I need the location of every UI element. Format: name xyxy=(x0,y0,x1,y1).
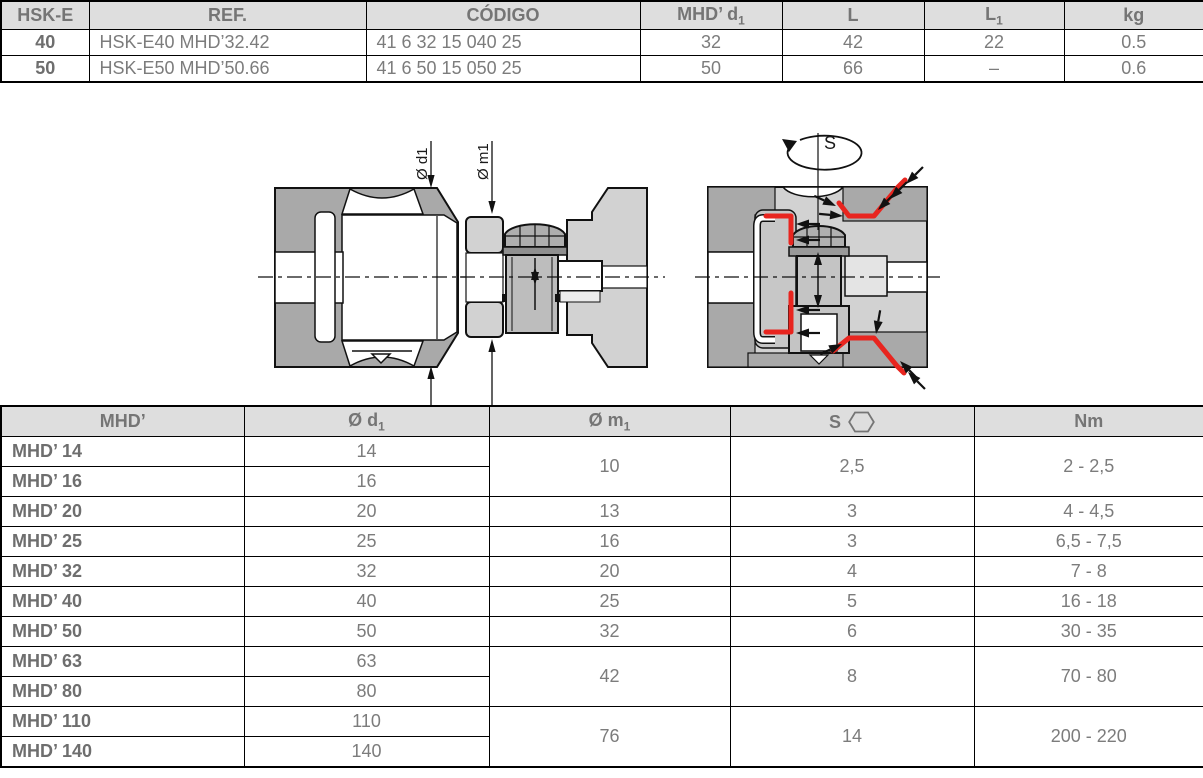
table-cell: 14 xyxy=(244,437,489,467)
column-header: L1 xyxy=(924,1,1064,30)
table-cell: 30 - 35 xyxy=(974,617,1203,647)
table-cell: MHD’ 25 xyxy=(1,527,244,557)
table-cell: 16 xyxy=(489,527,730,557)
table-cell: 25 xyxy=(489,587,730,617)
technical-drawing: Ø d1 Ø m1 xyxy=(0,85,1203,405)
column-header-label: HSK-E xyxy=(17,5,73,25)
column-header: HSK-E xyxy=(1,1,89,30)
column-header-label: MHD’ d xyxy=(677,4,738,24)
hex-icon xyxy=(848,411,875,433)
column-header: Ø d1 xyxy=(244,406,489,437)
column-header: MHD’ xyxy=(1,406,244,437)
column-header: kg xyxy=(1064,1,1203,30)
table-cell: 32 xyxy=(489,617,730,647)
table-row: MHD’ 636342870 - 80 xyxy=(1,647,1203,677)
table-cell: 2,5 xyxy=(730,437,974,497)
table-cell: 8 xyxy=(730,647,974,707)
table-cell: 42 xyxy=(782,30,924,56)
table-cell: 66 xyxy=(782,56,924,83)
column-header: Ø m1 xyxy=(489,406,730,437)
table-row: MHD’ 32322047 - 8 xyxy=(1,557,1203,587)
table-cell: 200 - 220 xyxy=(974,707,1203,768)
table-cell: 4 - 4,5 xyxy=(974,497,1203,527)
table-cell: 6,5 - 7,5 xyxy=(974,527,1203,557)
column-header-label: S xyxy=(829,412,841,432)
header-row: HSK-EREF.CÓDIGOMHD’ d1LL1kg xyxy=(1,1,1203,30)
table-cell: MHD’ 63 xyxy=(1,647,244,677)
table-cell: 4 xyxy=(730,557,974,587)
figure-assembly-section: S xyxy=(695,133,940,392)
column-header-label: Ø d xyxy=(348,410,378,430)
column-header-label: Nm xyxy=(1074,411,1103,431)
table-cell: 5 xyxy=(730,587,974,617)
table-cell: 50 xyxy=(640,56,782,83)
table-cell: 16 xyxy=(244,467,489,497)
table-cell: 16 - 18 xyxy=(974,587,1203,617)
table-cell: MHD’ 16 xyxy=(1,467,244,497)
table-cell: HSK-E50 MHD’50.66 xyxy=(89,56,366,83)
table-cell: 40 xyxy=(1,30,89,56)
table-cell: 63 xyxy=(244,647,489,677)
rotation-arrowhead xyxy=(782,139,797,152)
table-row: MHD’ 404025516 - 18 xyxy=(1,587,1203,617)
table-cell: MHD’ 14 xyxy=(1,437,244,467)
table-cell: HSK-E40 MHD’32.42 xyxy=(89,30,366,56)
table-cell: 3 xyxy=(730,497,974,527)
table-cell: 2 - 2,5 xyxy=(974,437,1203,497)
column-header-label: kg xyxy=(1123,5,1144,25)
table-cell: 32 xyxy=(640,30,782,56)
table-row: MHD’ 25251636,5 - 7,5 xyxy=(1,527,1203,557)
table-cell: 50 xyxy=(244,617,489,647)
table-cell: MHD’ 110 xyxy=(1,707,244,737)
table-cell: 32 xyxy=(244,557,489,587)
table-cell: 3 xyxy=(730,527,974,557)
header-row: MHD’Ø d1Ø m1SNm xyxy=(1,406,1203,437)
table-cell: MHD’ 20 xyxy=(1,497,244,527)
column-header: REF. xyxy=(89,1,366,30)
column-header: CÓDIGO xyxy=(366,1,640,30)
column-header-label: CÓDIGO xyxy=(466,5,539,25)
table-cell: 41 6 32 15 040 25 xyxy=(366,30,640,56)
column-header-label: MHD’ xyxy=(100,411,146,431)
table-cell: 13 xyxy=(489,497,730,527)
table-cell: 14 xyxy=(730,707,974,768)
table-cell: 0.5 xyxy=(1064,30,1203,56)
table-cell: MHD’ 80 xyxy=(1,677,244,707)
column-header-label: L xyxy=(985,4,996,24)
table-cell: 22 xyxy=(924,30,1064,56)
dim-label-m1: Ø m1 xyxy=(475,143,492,180)
table-row: 40HSK-E40 MHD’32.4241 6 32 15 040 253242… xyxy=(1,30,1203,56)
catalog-page: HSK-EREF.CÓDIGOMHD’ d1LL1kg40HSK-E40 MHD… xyxy=(0,0,1203,778)
table-row: MHD’ 1414102,52 - 2,5 xyxy=(1,437,1203,467)
table-cell: – xyxy=(924,56,1064,83)
table-cell: 20 xyxy=(244,497,489,527)
column-header-label: REF. xyxy=(208,5,247,25)
figure-head-section xyxy=(460,188,665,367)
mhd-spec-table: MHD’Ø d1Ø m1SNmMHD’ 1414102,52 - 2,5MHD’… xyxy=(0,405,1203,768)
hske-spec-table: HSK-EREF.CÓDIGOMHD’ d1LL1kg40HSK-E40 MHD… xyxy=(0,0,1203,83)
table-cell: 0.6 xyxy=(1064,56,1203,83)
table-cell: 110 xyxy=(244,707,489,737)
column-header: MHD’ d1 xyxy=(640,1,782,30)
table-cell: 20 xyxy=(489,557,730,587)
table-cell: MHD’ 50 xyxy=(1,617,244,647)
figure-holder-section xyxy=(258,188,468,367)
table-cell: 42 xyxy=(489,647,730,707)
table-cell: 140 xyxy=(244,737,489,768)
table-row: MHD’ 1101107614200 - 220 xyxy=(1,707,1203,737)
torque-label: S xyxy=(824,133,836,153)
column-header: L xyxy=(782,1,924,30)
table-cell: 76 xyxy=(489,707,730,768)
table-cell: 25 xyxy=(244,527,489,557)
table-cell: 10 xyxy=(489,437,730,497)
table-cell: MHD’ 32 xyxy=(1,557,244,587)
table-cell: MHD’ 40 xyxy=(1,587,244,617)
table-cell: 6 xyxy=(730,617,974,647)
column-header: S xyxy=(730,406,974,437)
table-row: MHD’ 505032630 - 35 xyxy=(1,617,1203,647)
column-header: Nm xyxy=(974,406,1203,437)
table-cell: 70 - 80 xyxy=(974,647,1203,707)
table-cell: 80 xyxy=(244,677,489,707)
table-cell: 41 6 50 15 050 25 xyxy=(366,56,640,83)
table-cell: MHD’ 140 xyxy=(1,737,244,768)
column-header-label: L xyxy=(848,5,859,25)
table-cell: 7 - 8 xyxy=(974,557,1203,587)
column-header-label: Ø m xyxy=(589,410,624,430)
table-row: 50HSK-E50 MHD’50.6641 6 50 15 050 255066… xyxy=(1,56,1203,83)
table-cell: 40 xyxy=(244,587,489,617)
table-cell: 50 xyxy=(1,56,89,83)
table-row: MHD’ 20201334 - 4,5 xyxy=(1,497,1203,527)
